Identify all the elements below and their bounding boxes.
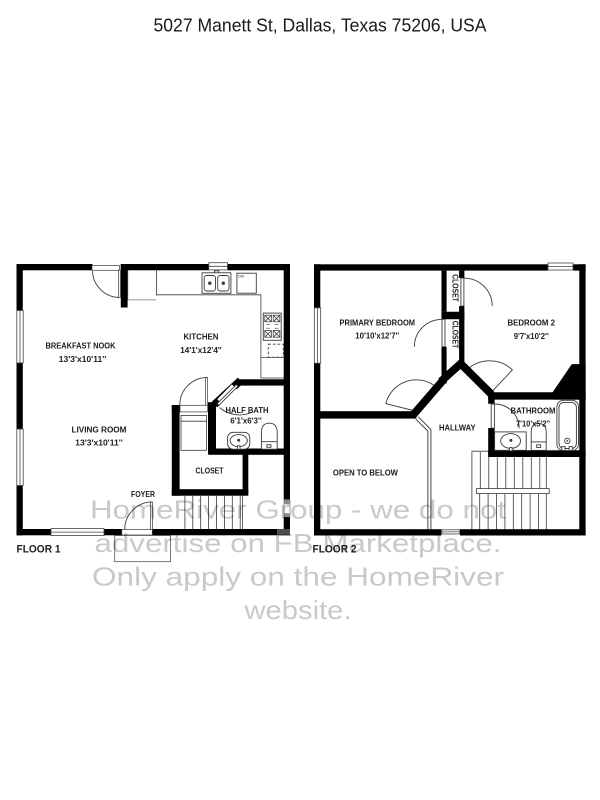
- svg-text:HomeRiver Group - we do not: HomeRiver Group - we do not: [90, 495, 507, 525]
- svg-text:HALLWAY: HALLWAY: [439, 423, 476, 433]
- svg-text:PRIMARY BEDROOM: PRIMARY BEDROOM: [340, 317, 416, 327]
- svg-text:9'7'x10'2'': 9'7'x10'2'': [514, 331, 549, 341]
- svg-text:5027 Manett St, Dallas, Texas: 5027 Manett St, Dallas, Texas 75206, USA: [154, 15, 487, 35]
- svg-text:BREAKFAST NOOK: BREAKFAST NOOK: [46, 340, 117, 350]
- svg-text:CLOSET: CLOSET: [451, 321, 460, 349]
- svg-text:DW: DW: [238, 275, 245, 279]
- svg-text:HALF BATH: HALF BATH: [226, 405, 269, 415]
- svg-text:CLOSET: CLOSET: [451, 274, 460, 302]
- svg-text:CLOSET: CLOSET: [196, 465, 225, 475]
- svg-text:13'3'x10'11'': 13'3'x10'11'': [75, 438, 123, 448]
- svg-text:BEDROOM 2: BEDROOM 2: [507, 318, 555, 328]
- svg-text:14'1'x12'4'': 14'1'x12'4'': [180, 345, 222, 355]
- svg-text:OPEN TO BELOW: OPEN TO BELOW: [333, 467, 398, 477]
- svg-text:6'1'x6'3'': 6'1'x6'3'': [230, 415, 262, 425]
- svg-text:KITCHEN: KITCHEN: [184, 332, 219, 342]
- svg-text:Only apply on the HomeRiver: Only apply on the HomeRiver: [92, 562, 504, 592]
- svg-text:13'3'x10'11'': 13'3'x10'11'': [59, 354, 107, 364]
- svg-text:BATHROOM: BATHROOM: [511, 406, 556, 416]
- svg-text:FLOOR 1: FLOOR 1: [17, 544, 61, 556]
- svg-text:7'10'x5'2'': 7'10'x5'2'': [516, 418, 550, 428]
- svg-text:10'10'x12'7'': 10'10'x12'7'': [355, 330, 399, 340]
- svg-text:advertise on FB Marketplace.: advertise on FB Marketplace.: [95, 528, 502, 558]
- svg-text:website.: website.: [243, 595, 351, 625]
- svg-text:LIVING ROOM: LIVING ROOM: [72, 424, 127, 434]
